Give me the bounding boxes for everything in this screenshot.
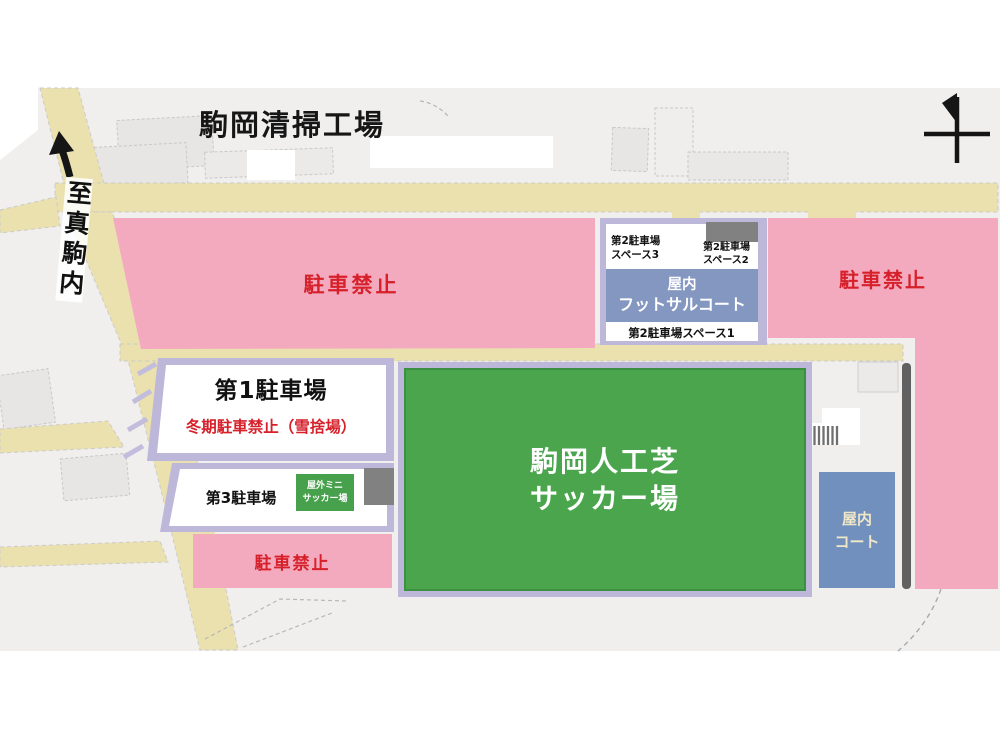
no-parking-label: 駐車禁止 <box>304 269 400 299</box>
parking2-space3-label: 第2駐車場 スペース3 <box>611 234 660 262</box>
parking2-space1-label: 第2駐車場スペース1 <box>600 325 763 341</box>
parking2-space2-label: 第2駐車場 スペース2 <box>703 241 750 267</box>
label-line: スペース2 <box>703 254 750 267</box>
futsal-court-label: フットサルコート <box>618 295 746 314</box>
mini-soccer-label: サッカー場 <box>302 493 347 505</box>
main-field-turf: 駒岡人工芝 サッカー場 <box>404 368 806 591</box>
parking3-zone: 第3駐車場 屋外ミニ サッカー場 <box>158 461 396 533</box>
main-field-label: サッカー場 <box>530 480 680 517</box>
indoor-court-label: コート <box>834 533 879 551</box>
fence-bar <box>902 363 911 589</box>
indoor-court-label: 屋内 <box>842 510 872 528</box>
main-field-label: 駒岡人工芝 <box>530 443 680 480</box>
parking1-title: 第1駐車場 <box>156 371 386 405</box>
label-line: スペース3 <box>611 248 660 262</box>
futsal-court-label: 屋内 <box>668 277 697 294</box>
indoor-court-box: 屋内 コート <box>819 472 895 588</box>
no-parking-label: 駐車禁止 <box>255 549 331 574</box>
no-parking-label: 駐車禁止 <box>768 264 998 293</box>
label-line: 第2駐車場 <box>703 241 750 254</box>
parking1-zone: 第1駐車場 冬期駐車禁止（雪捨場） <box>146 356 396 464</box>
plant-title: 駒岡清掃工場 <box>199 102 385 144</box>
zone-no-parking-bottom: 駐車禁止 <box>193 534 392 588</box>
parking3-title: 第3駐車場 <box>186 487 296 508</box>
parking2-block: 第2駐車場 スペース3 第2駐車場 スペース2 屋内 フットサルコート 第2駐車… <box>600 218 767 345</box>
mini-soccer-label: 屋外ミニ <box>307 480 343 492</box>
zone-no-parking-left: 駐車禁止 <box>108 218 595 349</box>
facility-map: 駒岡清掃工場 至真駒内 駐車禁止 駐車禁止 駐車禁止 第2駐車場 スペース3 第… <box>0 0 1000 750</box>
label-line: 第2駐車場 <box>611 234 660 248</box>
futsal-court-box: 屋内 フットサルコート <box>606 269 758 322</box>
parking1-winter-note: 冬期駐車禁止（雪捨場） <box>156 415 386 437</box>
building-block <box>364 468 394 505</box>
main-field-zone: 駒岡人工芝 サッカー場 <box>398 362 812 597</box>
mini-soccer-box: 屋外ミニ サッカー場 <box>296 474 354 511</box>
building-block <box>706 222 758 242</box>
